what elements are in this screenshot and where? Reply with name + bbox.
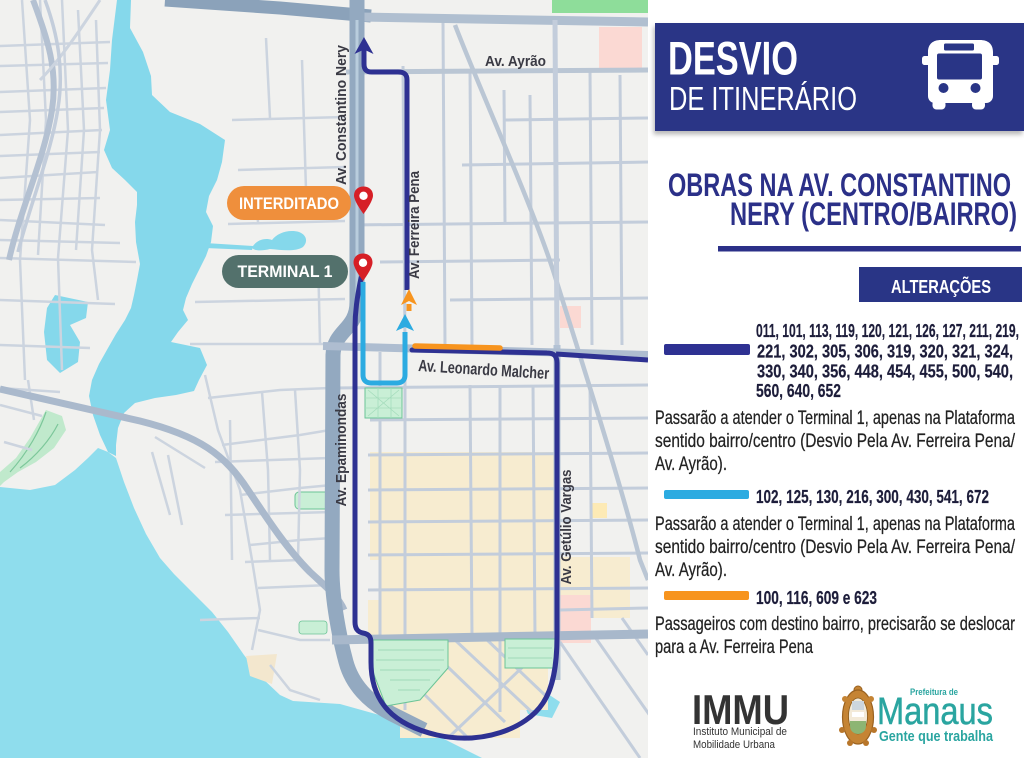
svg-text:Av. Ayrão).: Av. Ayrão). <box>655 453 727 475</box>
svg-text:100, 116, 609 e 623: 100, 116, 609 e 623 <box>756 587 877 608</box>
svg-text:sentido bairro/centro (Desvio: sentido bairro/centro (Desvio Pela Av. F… <box>655 536 1015 558</box>
svg-text:011, 101, 113, 119, 120, 121,: 011, 101, 113, 119, 120, 121, 126, 127, … <box>756 320 1019 341</box>
svg-text:DESVIO: DESVIO <box>668 32 798 85</box>
svg-text:Passageiros com destino bairro: Passageiros com destino bairro, precisar… <box>655 613 1015 635</box>
svg-text:Av. Ayrão).: Av. Ayrão). <box>655 559 727 581</box>
svg-text:221, 302, 305, 306, 319, 320,: 221, 302, 305, 306, 319, 320, 321, 324, <box>757 341 1013 362</box>
svg-text:Passarão a atender o Terminal: Passarão a atender o Terminal 1, apenas … <box>655 513 1015 535</box>
svg-text:TERMINAL 1: TERMINAL 1 <box>238 263 333 281</box>
svg-text:DE ITINERÁRIO: DE ITINERÁRIO <box>669 80 857 117</box>
svg-text:Av. Ayrão: Av. Ayrão <box>485 53 546 70</box>
svg-text:Mobilidade Urbana: Mobilidade Urbana <box>693 739 776 751</box>
svg-text:ALTERAÇÕES: ALTERAÇÕES <box>891 276 991 297</box>
svg-text:Instituto Municipal de: Instituto Municipal de <box>693 726 787 738</box>
svg-text:Av. Getúlio Vargas: Av. Getúlio Vargas <box>559 470 575 585</box>
svg-text:560, 640, 652: 560, 640, 652 <box>756 380 841 401</box>
svg-text:INTERDITADO: INTERDITADO <box>239 195 339 213</box>
svg-text:sentido bairro/centro (Desvio: sentido bairro/centro (Desvio Pela Av. F… <box>655 430 1015 452</box>
svg-text:330, 340, 356, 448, 454, 455,: 330, 340, 356, 448, 454, 455, 500, 540, <box>757 361 1013 382</box>
svg-text:para a Av. Ferreira Pena: para a Av. Ferreira Pena <box>655 636 813 658</box>
svg-text:Manaus: Manaus <box>877 691 993 733</box>
svg-text:102, 125, 130, 216, 300, 430,: 102, 125, 130, 216, 300, 430, 541, 672 <box>756 486 989 507</box>
svg-text:Av. Constantino Nery: Av. Constantino Nery <box>334 45 350 185</box>
svg-text:Passarão a atender o Terminal: Passarão a atender o Terminal 1, apenas … <box>655 407 1015 429</box>
svg-text:NERY (CENTRO/BAIRRO): NERY (CENTRO/BAIRRO) <box>730 196 1017 232</box>
svg-text:Gente que trabalha: Gente que trabalha <box>879 728 994 745</box>
svg-text:Av. Ferreira Pena: Av. Ferreira Pena <box>407 170 423 279</box>
svg-text:Av. Epaminondas: Av. Epaminondas <box>334 394 350 507</box>
